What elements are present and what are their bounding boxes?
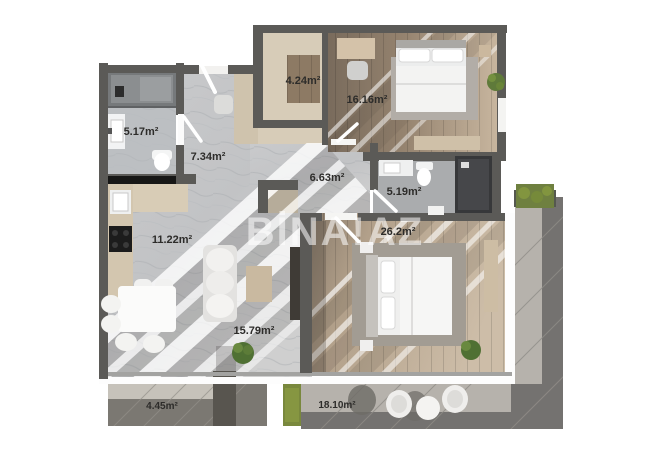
svg-text:26.2m²: 26.2m² bbox=[381, 226, 416, 238]
svg-text:11.22m²: 11.22m² bbox=[152, 234, 193, 246]
svg-text:7.34m²: 7.34m² bbox=[191, 151, 226, 163]
svg-text:4.45m²: 4.45m² bbox=[146, 401, 178, 412]
svg-text:16.16m²: 16.16m² bbox=[347, 94, 388, 106]
svg-text:18.10m²: 18.10m² bbox=[318, 400, 356, 411]
svg-text:6.63m²: 6.63m² bbox=[310, 172, 345, 184]
svg-text:4.24m²: 4.24m² bbox=[286, 75, 321, 87]
svg-text:5.17m²: 5.17m² bbox=[124, 126, 159, 138]
svg-text:15.79m²: 15.79m² bbox=[234, 325, 275, 337]
svg-text:5.19m²: 5.19m² bbox=[387, 186, 422, 198]
